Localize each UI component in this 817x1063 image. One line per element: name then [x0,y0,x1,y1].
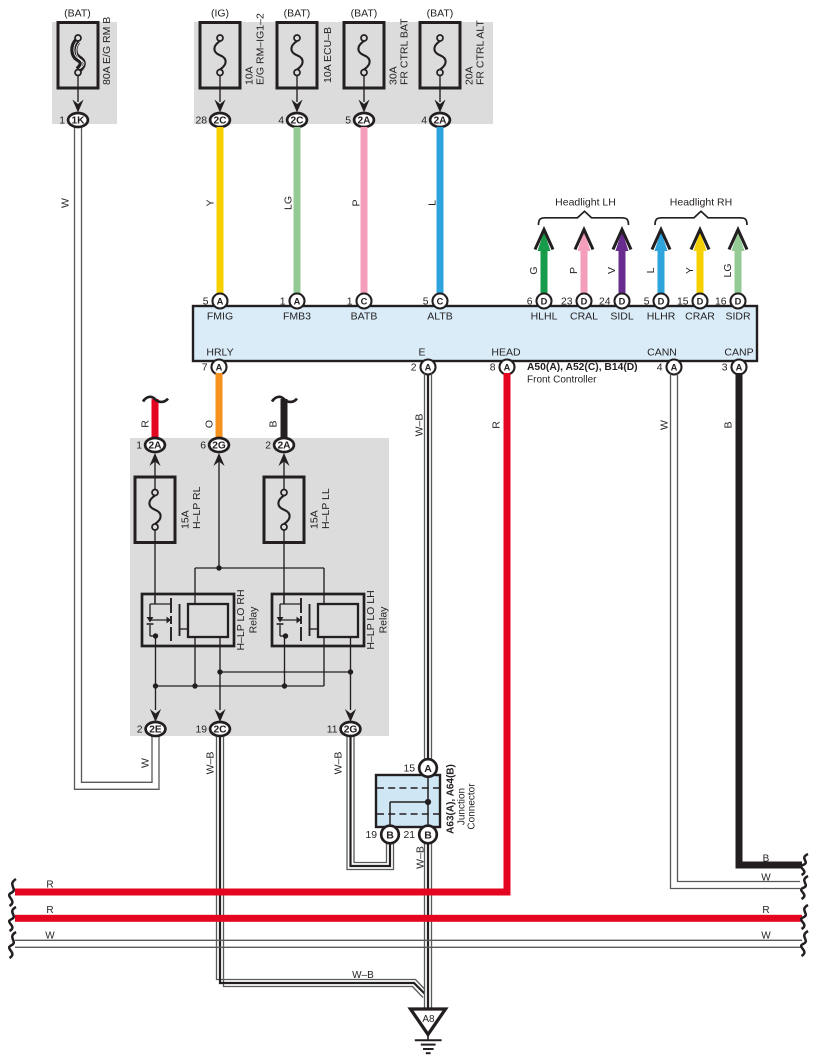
svg-text:W: W [45,931,55,942]
svg-text:SIDR: SIDR [725,311,751,323]
svg-text:15A: 15A [309,510,321,529]
svg-text:1: 1 [347,297,353,308]
svg-text:4: 4 [278,116,284,127]
svg-text:A: A [736,362,743,372]
svg-text:2: 2 [411,363,417,374]
svg-text:A: A [294,296,301,306]
svg-text:1K: 1K [71,116,85,127]
svg-text:ALTB: ALTB [427,311,452,323]
svg-text:7: 7 [202,363,208,374]
svg-text:W: W [140,758,152,768]
svg-text:D: D [541,296,548,306]
svg-text:1: 1 [59,116,65,127]
svg-text:E: E [418,347,425,359]
svg-text:A: A [425,362,432,372]
svg-text:A: A [424,763,432,775]
svg-text:Front Controller: Front Controller [527,375,597,386]
svg-text:(BAT): (BAT) [64,8,91,20]
svg-text:R: R [46,880,53,891]
svg-text:(BAT): (BAT) [351,8,378,20]
svg-text:15A: 15A [180,510,192,529]
svg-text:4: 4 [657,363,663,374]
svg-text:1: 1 [136,441,142,452]
svg-text:C: C [437,296,444,306]
svg-text:Y: Y [684,267,696,274]
svg-text:8: 8 [490,363,496,374]
svg-text:5: 5 [423,297,429,308]
svg-text:2A: 2A [433,116,447,127]
svg-text:CANN: CANN [647,347,677,359]
svg-text:L: L [645,267,657,273]
svg-text:A: A [671,362,678,372]
svg-text:V: V [606,267,618,274]
svg-text:2C: 2C [213,116,227,127]
svg-text:C: C [361,296,368,306]
svg-text:A: A [217,296,224,306]
svg-text:6: 6 [200,441,206,452]
svg-text:HEAD: HEAD [491,347,521,359]
svg-text:CRAL: CRAL [570,311,598,323]
svg-text:Relay: Relay [378,606,390,634]
svg-text:FR CTRL ALT: FR CTRL ALT [475,20,487,85]
svg-text:2E: 2E [149,725,162,736]
svg-text:R: R [140,420,152,428]
svg-text:20A: 20A [463,66,475,85]
svg-text:Y: Y [205,199,217,206]
svg-text:LG: LG [722,263,734,277]
svg-text:3: 3 [722,363,728,374]
svg-text:2: 2 [137,725,143,736]
svg-text:5: 5 [345,116,351,127]
svg-text:W: W [659,420,671,430]
svg-text:5: 5 [644,297,650,308]
svg-text:FR CTRL BAT: FR CTRL BAT [399,18,411,85]
svg-text:2A: 2A [277,441,291,452]
svg-text:19: 19 [195,725,207,736]
svg-text:W–B: W–B [333,752,345,775]
svg-text:P: P [568,267,580,274]
svg-text:2G: 2G [344,725,358,736]
svg-text:E/G RM–IG1–2: E/G RM–IG1–2 [255,13,267,85]
svg-text:A: A [504,362,511,372]
svg-text:H–LP RL: H–LP RL [191,486,203,529]
svg-text:23: 23 [561,297,573,308]
svg-text:A8: A8 [422,1014,435,1025]
svg-text:B: B [386,829,394,841]
svg-text:1: 1 [280,297,286,308]
svg-text:HLHL: HLHL [531,311,558,323]
svg-text:B: B [424,829,432,841]
svg-text:D: D [619,296,626,306]
svg-text:Headlight LH: Headlight LH [555,197,616,209]
svg-text:H–LP LO RH: H–LP LO RH [235,589,247,650]
svg-text:11: 11 [327,725,338,736]
svg-text:6: 6 [527,297,533,308]
svg-text:W–B: W–B [414,414,426,437]
svg-text:Headlight RH: Headlight RH [670,197,732,209]
svg-text:W: W [761,931,771,942]
svg-text:D: D [658,296,665,306]
svg-text:2C: 2C [213,725,227,736]
svg-text:4: 4 [421,116,427,127]
svg-text:A50(A), A52(C), B14(D): A50(A), A52(C), B14(D) [527,362,638,373]
svg-text:21: 21 [403,830,415,841]
svg-text:2: 2 [265,441,271,452]
svg-text:30A: 30A [387,66,399,85]
svg-text:G: G [528,266,540,274]
svg-text:A63(A), A64(B): A63(A), A64(B) [446,764,457,834]
svg-text:28: 28 [195,116,207,127]
svg-text:A: A [216,362,223,372]
svg-text:W: W [761,873,771,884]
svg-text:(IG): (IG) [211,8,229,20]
svg-text:CRAR: CRAR [685,311,715,323]
svg-text:HRLY: HRLY [206,347,233,359]
svg-text:2G: 2G [212,441,226,452]
svg-text:W–B: W–B [415,846,427,869]
svg-text:(BAT): (BAT) [284,8,311,20]
svg-text:P: P [351,199,363,206]
svg-text:BATB: BATB [351,311,378,323]
svg-text:W: W [60,198,72,208]
svg-text:FMIG: FMIG [207,311,233,323]
svg-text:R: R [46,905,53,916]
svg-text:(BAT): (BAT) [427,8,454,20]
svg-text:SIDL: SIDL [610,311,634,323]
svg-text:24: 24 [599,297,611,308]
svg-text:Relay: Relay [248,606,260,634]
svg-text:W–B: W–B [352,970,374,981]
svg-text:H–LP LO LH: H–LP LO LH [365,590,377,649]
svg-text:D: D [735,296,742,306]
svg-text:O: O [204,420,216,428]
svg-text:80A E/G RM B: 80A E/G RM B [101,17,113,85]
svg-text:R: R [491,421,503,429]
svg-text:Connector: Connector [467,783,478,830]
svg-text:15: 15 [403,764,415,775]
svg-text:2C: 2C [290,116,304,127]
svg-text:16: 16 [715,297,727,308]
svg-text:LG: LG [283,196,295,210]
svg-text:FMB3: FMB3 [283,311,311,323]
svg-text:5: 5 [203,297,209,308]
svg-text:19: 19 [365,830,377,841]
svg-text:D: D [697,296,704,306]
svg-text:HLHR: HLHR [647,311,676,323]
svg-text:H–LP LL: H–LP LL [320,488,332,529]
svg-text:R: R [762,905,769,916]
svg-text:B: B [763,854,770,865]
svg-text:L: L [427,200,439,206]
svg-text:10A: 10A [243,66,255,85]
svg-text:10A ECU–B: 10A ECU–B [322,27,334,83]
svg-text:B: B [723,421,735,428]
svg-text:B: B [268,420,280,427]
svg-text:15: 15 [677,297,689,308]
svg-text:2A: 2A [148,441,162,452]
svg-text:CANP: CANP [724,347,753,359]
svg-text:W–B: W–B [205,752,217,775]
svg-text:2A: 2A [357,116,371,127]
svg-text:D: D [581,296,588,306]
